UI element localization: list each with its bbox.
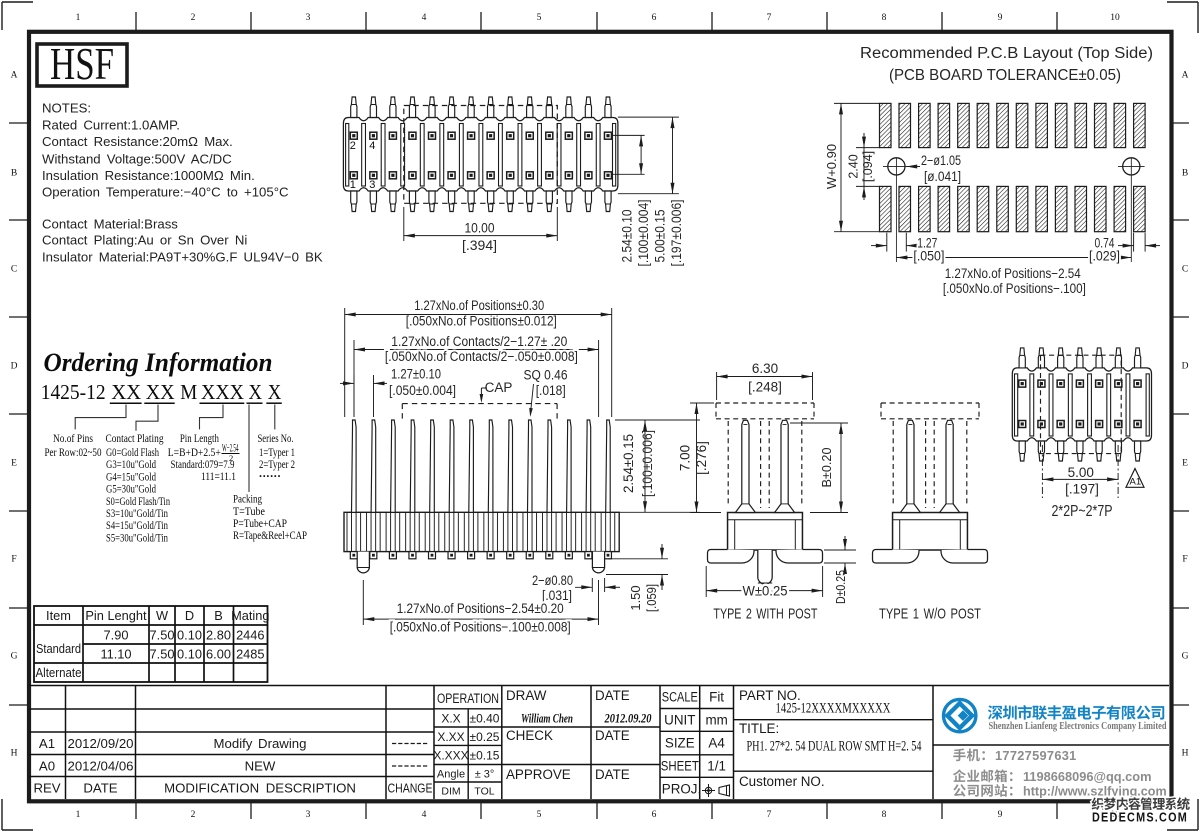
svg-text:1425-12XXXXMXXXXX: 1425-12XXXXMXXXXX — [776, 701, 891, 717]
svg-text:4: 4 — [422, 13, 427, 23]
svg-text:CHANGE: CHANGE — [388, 781, 433, 796]
svg-text:2: 2 — [191, 13, 196, 23]
svg-text:X: X — [249, 380, 263, 404]
svg-text:±0.25: ±0.25 — [470, 730, 500, 744]
svg-text:5.00: 5.00 — [1068, 465, 1094, 480]
svg-text:SCALE: SCALE — [662, 690, 698, 705]
svg-text:B: B — [11, 169, 17, 179]
svg-text:1425-12: 1425-12 — [41, 380, 106, 404]
svg-text:DRAW: DRAW — [506, 688, 547, 703]
svg-text:[.050xNo.of Positions−.100±0.0: [.050xNo.of Positions−.100±0.008] — [390, 620, 571, 635]
svg-text:Mating: Mating — [231, 608, 269, 623]
svg-text:H: H — [11, 749, 18, 759]
svg-text:APPROVE: APPROVE — [506, 767, 571, 782]
svg-text:1: 1 — [350, 179, 356, 191]
svg-text:TITLE:: TITLE: — [739, 721, 779, 736]
svg-text:7.50: 7.50 — [150, 628, 175, 643]
svg-text:R=Tape&Reel+CAP: R=Tape&Reel+CAP — [233, 528, 307, 542]
svg-text:XX: XX — [146, 380, 175, 404]
svg-text:Standard: Standard — [36, 641, 81, 656]
svg-text:0.10: 0.10 — [177, 628, 202, 643]
svg-text:[.029]: [.029] — [1089, 249, 1120, 264]
svg-text:G: G — [1182, 652, 1189, 662]
svg-text:Series No.: Series No. — [258, 431, 294, 445]
svg-text:OPERATION: OPERATION — [437, 691, 499, 706]
svg-text:10: 10 — [1110, 13, 1120, 23]
svg-text:7: 7 — [767, 13, 772, 23]
svg-text:TYPE 2 WITH POST: TYPE 2 WITH POST — [713, 606, 817, 623]
svg-text:[.094]: [.094] — [861, 151, 875, 182]
svg-text:[.050±0.004]: [.050±0.004] — [389, 383, 456, 398]
svg-text:Rated Current:1.0AMP.: Rated Current:1.0AMP. — [42, 118, 180, 133]
svg-text:[.100±0.006]: [.100±0.006] — [640, 430, 655, 497]
svg-text:(PCB BOARD TOLERANCE±0.05): (PCB BOARD TOLERANCE±0.05) — [889, 67, 1121, 84]
svg-text:6.30: 6.30 — [752, 361, 778, 376]
svg-text:H: H — [1182, 749, 1189, 759]
svg-text:M: M — [180, 380, 197, 404]
svg-text:XX: XX — [111, 380, 141, 404]
svg-text:[.276]: [.276] — [694, 441, 709, 475]
svg-text:0.10: 0.10 — [177, 647, 202, 662]
svg-text:1.27xNo.of Positions±0.30: 1.27xNo.of Positions±0.30 — [414, 298, 544, 313]
svg-text:9: 9 — [998, 13, 1003, 23]
svg-text:2: 2 — [350, 140, 356, 152]
svg-text:W: W — [156, 608, 169, 623]
svg-text:C: C — [1182, 265, 1188, 275]
svg-text:Insulation Resistance:1000MΩ M: Insulation Resistance:1000MΩ Min. — [42, 168, 255, 183]
svg-text:5: 5 — [537, 13, 542, 23]
svg-text:Customer NO.: Customer NO. — [739, 774, 825, 789]
svg-text:D±0.25: D±0.25 — [833, 570, 848, 604]
svg-text:2: 2 — [191, 810, 196, 820]
svg-text:F: F — [11, 555, 16, 565]
svg-text:B: B — [1182, 169, 1188, 179]
svg-text:Alternate: Alternate — [36, 665, 82, 680]
svg-text:A4: A4 — [708, 736, 725, 751]
svg-text:3: 3 — [306, 810, 311, 820]
svg-text:X: X — [268, 380, 282, 404]
svg-text:Per Row:02~50: Per Row:02~50 — [45, 445, 102, 459]
svg-text:S5=30u"Gold/Tin: S5=30u"Gold/Tin — [106, 530, 168, 544]
svg-text:W±0.25: W±0.25 — [743, 583, 788, 599]
svg-text:2.54±0.10: 2.54±0.10 — [620, 210, 635, 263]
svg-text:2.80: 2.80 — [206, 628, 231, 643]
svg-text:W+0.90: W+0.90 — [824, 144, 839, 189]
svg-text:SQ 0.46: SQ 0.46 — [524, 368, 568, 383]
svg-text:[.018]: [.018] — [536, 383, 566, 398]
svg-text:TOL: TOL — [474, 786, 494, 798]
svg-text:2−ø1.05: 2−ø1.05 — [921, 153, 961, 168]
svg-text:SIZE: SIZE — [665, 736, 695, 751]
svg-text:Shenzhen Lianfeng Electronics: Shenzhen Lianfeng Electronics Company Li… — [989, 721, 1167, 732]
svg-text:E: E — [1182, 459, 1188, 469]
svg-text:[.050xNo.of Positions−.100]: [.050xNo.of Positions−.100] — [943, 281, 1086, 296]
svg-text:8: 8 — [882, 13, 887, 23]
svg-text:1198668096@qq.com: 1198668096@qq.com — [1023, 769, 1151, 784]
svg-text:1.50: 1.50 — [628, 585, 643, 610]
svg-text:4: 4 — [369, 140, 375, 152]
svg-text:William Chen: William Chen — [521, 712, 573, 726]
svg-text:5.00±0.15: 5.00±0.15 — [653, 210, 668, 263]
svg-text:A: A — [1182, 71, 1189, 81]
svg-text:Recommended P.C.B Layout (Top: Recommended P.C.B Layout (Top Side) — [860, 45, 1153, 62]
svg-text:CAP: CAP — [485, 380, 513, 395]
svg-text:1.27xNo.of Positions−2.54±0.20: 1.27xNo.of Positions−2.54±0.20 — [397, 601, 564, 616]
svg-text:[.050xNo.of Contacts/2−.050±0.: [.050xNo.of Contacts/2−.050±0.008] — [385, 349, 578, 364]
svg-text:±0.40: ±0.40 — [470, 712, 500, 726]
svg-text:111=11.1: 111=11.1 — [201, 469, 236, 483]
svg-text:PH1. 27*2. 54 DUAL ROW SMT H=2: PH1. 27*2. 54 DUAL ROW SMT H=2. 54 — [747, 739, 922, 755]
svg-text:......: ...... — [259, 466, 281, 480]
svg-text:[.100±0.004]: [.100±0.004] — [636, 200, 651, 267]
svg-text:17727597631: 17727597631 — [995, 748, 1077, 763]
svg-text:2.54±0.15: 2.54±0.15 — [621, 434, 636, 493]
svg-text:MODIFICATION DESCRIPTION: MODIFICATION DESCRIPTION — [164, 781, 356, 796]
svg-text:DATE: DATE — [595, 767, 630, 782]
svg-text:X.XXX: X.XXX — [433, 749, 468, 763]
svg-text:Pin Lenght: Pin Lenght — [85, 608, 147, 623]
svg-text:± 3°: ± 3° — [475, 769, 495, 781]
svg-text:HSF: HSF — [50, 38, 114, 89]
svg-text:[.197]: [.197] — [1065, 482, 1099, 497]
svg-text:Modify Drawing: Modify Drawing — [214, 736, 307, 751]
svg-text:2.40: 2.40 — [847, 154, 861, 178]
svg-text:1/1: 1/1 — [707, 759, 726, 774]
svg-text:Fit: Fit — [709, 690, 724, 705]
svg-text:mm: mm — [705, 713, 727, 728]
svg-text:A: A — [11, 71, 18, 81]
svg-text:1: 1 — [76, 13, 81, 23]
svg-text:CHECK: CHECK — [506, 728, 553, 743]
svg-text:DATE: DATE — [83, 781, 117, 796]
svg-text:2*2P~2*7P: 2*2P~2*7P — [1052, 503, 1113, 520]
svg-text:[.197±0.006]: [.197±0.006] — [669, 200, 684, 267]
svg-text:[.394]: [.394] — [462, 238, 497, 253]
svg-text:1.27±0.10: 1.27±0.10 — [391, 367, 441, 382]
svg-text:D: D — [1182, 362, 1189, 372]
svg-text:2012.09.20: 2012.09.20 — [604, 712, 652, 726]
svg-text:A1: A1 — [1129, 477, 1141, 488]
svg-text:9: 9 — [998, 810, 1003, 820]
svg-text:A0: A0 — [39, 759, 55, 774]
svg-text:[.248]: [.248] — [748, 380, 782, 395]
svg-text:5: 5 — [537, 810, 542, 820]
svg-text:Withstand Voltage:500V AC/DC: Withstand Voltage:500V AC/DC — [42, 152, 232, 167]
svg-text:TYPE 1 W/O POST: TYPE 1 W/O POST — [879, 606, 981, 623]
svg-text:NOTES:: NOTES: — [42, 101, 91, 116]
svg-text:NEW: NEW — [245, 759, 276, 774]
svg-text:X.X: X.X — [441, 712, 460, 726]
svg-text:11.10: 11.10 — [100, 647, 131, 662]
svg-text:Item: Item — [46, 608, 71, 623]
svg-text:D: D — [11, 362, 18, 372]
svg-text:B: B — [214, 608, 223, 623]
svg-text:7.90: 7.90 — [104, 628, 129, 643]
svg-text:DATE: DATE — [595, 728, 630, 743]
svg-text:Insulator Material:PA9T+30%G.F: Insulator Material:PA9T+30%G.F UL94V−0 B… — [42, 250, 323, 265]
svg-text:X.XX: X.XX — [437, 730, 464, 744]
svg-text:2446: 2446 — [236, 628, 264, 643]
svg-text:D: D — [185, 608, 194, 623]
svg-text:E: E — [11, 459, 17, 469]
svg-text:[.050]: [.050] — [913, 249, 944, 264]
svg-text:1.27xNo.of Contacts/2−1.27± .2: 1.27xNo.of Contacts/2−1.27± .20 — [391, 334, 567, 349]
svg-text:±0.15: ±0.15 — [470, 749, 500, 763]
svg-text:G: G — [11, 652, 18, 662]
svg-text:7.00: 7.00 — [678, 445, 693, 471]
svg-text:2012/09/20: 2012/09/20 — [67, 736, 133, 751]
svg-text:C: C — [11, 265, 17, 275]
svg-text:DATE: DATE — [595, 688, 630, 703]
svg-text:REV: REV — [33, 781, 60, 796]
svg-text:10.00: 10.00 — [465, 221, 495, 236]
svg-text:1.27xNo.of Positions−2.54: 1.27xNo.of Positions−2.54 — [945, 266, 1081, 281]
svg-text:Contact Plating:Au or Sn Over: Contact Plating:Au or Sn Over Ni — [42, 233, 247, 248]
svg-text:Contact Resistance:20mΩ Max.: Contact Resistance:20mΩ Max. — [42, 134, 233, 149]
svg-text:[.050xNo.of Positions±0.012]: [.050xNo.of Positions±0.012] — [406, 314, 557, 329]
svg-text:7: 7 — [767, 810, 772, 820]
svg-text:4: 4 — [422, 810, 427, 820]
svg-text:Ordering Information: Ordering Information — [44, 348, 273, 377]
svg-text:Operation Temperature:−40°C to: Operation Temperature:−40°C to +105°C — [42, 185, 289, 200]
svg-text:PROJ.: PROJ. — [662, 782, 701, 797]
svg-text:XXX: XXX — [201, 380, 244, 404]
svg-text:3: 3 — [306, 13, 311, 23]
svg-text:8: 8 — [882, 810, 887, 820]
svg-text:F: F — [1182, 555, 1187, 565]
svg-text:Pin Length: Pin Length — [180, 431, 219, 445]
svg-text:[ø.041]: [ø.041] — [924, 169, 961, 184]
svg-text:2485: 2485 — [236, 647, 264, 662]
svg-text:DEDECMS.COM: DEDECMS.COM — [1092, 810, 1188, 825]
svg-text:A1: A1 — [39, 736, 55, 751]
svg-text:2012/04/06: 2012/04/06 — [67, 759, 133, 774]
svg-text:B±0.20: B±0.20 — [819, 448, 834, 488]
svg-text:No.of Pins: No.of Pins — [53, 431, 93, 445]
svg-text:Contact Plating: Contact Plating — [106, 431, 164, 445]
svg-text:UNIT: UNIT — [664, 713, 695, 728]
svg-text:1: 1 — [76, 810, 81, 820]
svg-text:3: 3 — [369, 179, 375, 191]
svg-text:SHEET: SHEET — [661, 759, 699, 774]
svg-text:2−ø0.80: 2−ø0.80 — [532, 573, 573, 588]
svg-text:Contact Material:Brass: Contact Material:Brass — [42, 217, 178, 232]
svg-text:[.059]: [.059] — [644, 584, 659, 612]
svg-text:Angle: Angle — [437, 769, 465, 781]
svg-text:6: 6 — [652, 13, 657, 23]
svg-text:DIM: DIM — [441, 786, 460, 798]
svg-text:6.00: 6.00 — [206, 647, 231, 662]
svg-text:7.50: 7.50 — [150, 647, 175, 662]
svg-text:6: 6 — [652, 810, 657, 820]
